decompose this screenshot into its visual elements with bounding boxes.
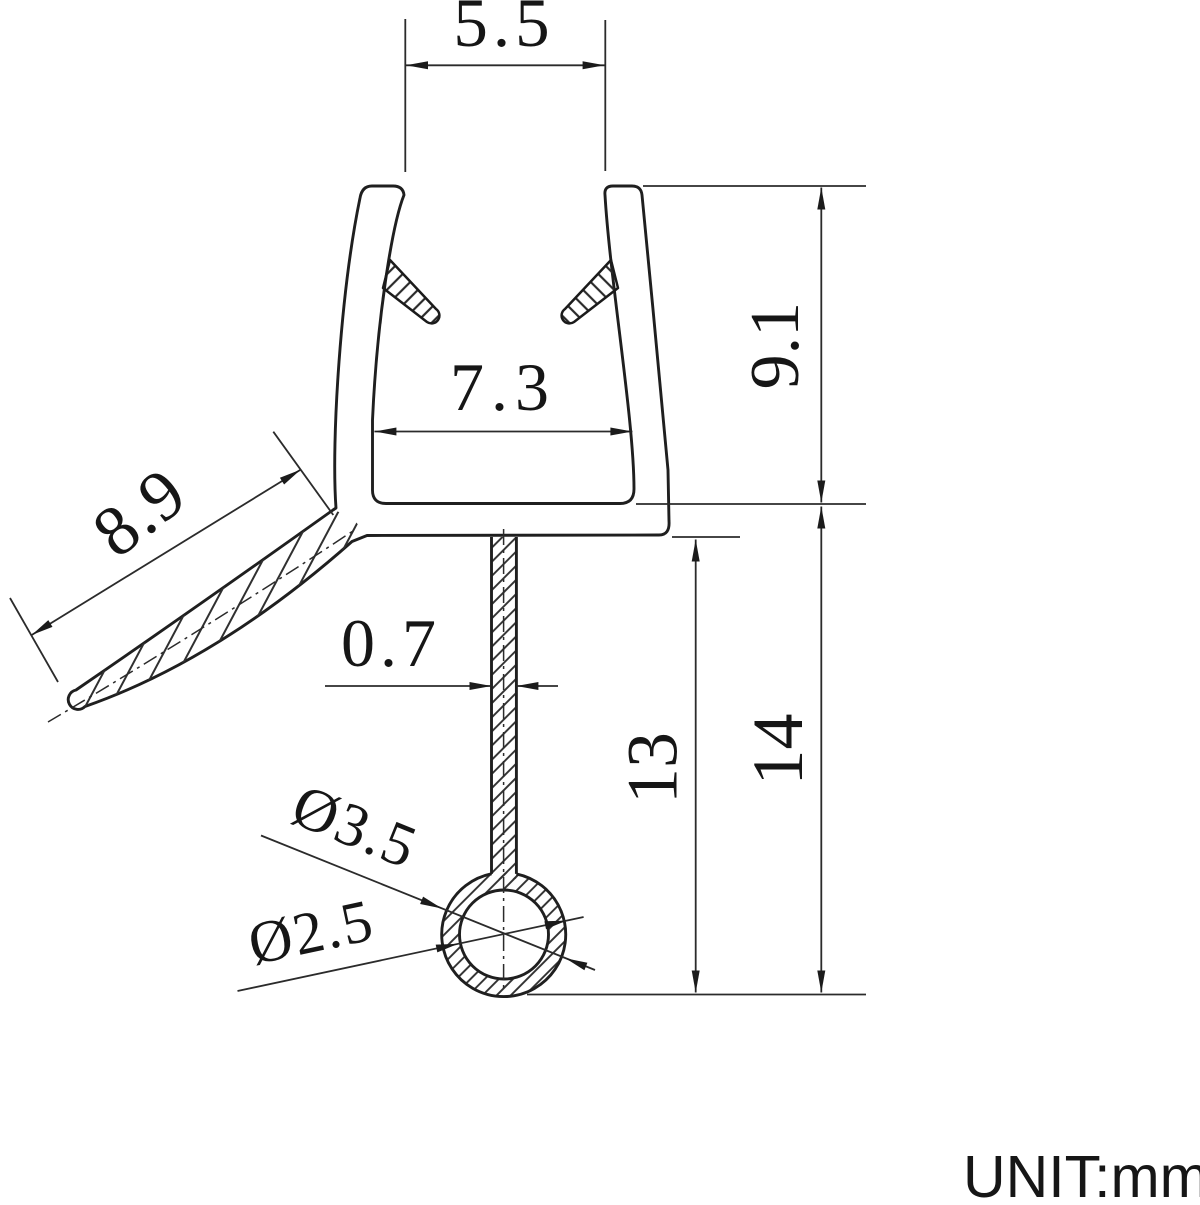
svg-text:Ø3.5: Ø3.5 xyxy=(283,772,427,882)
svg-text:7.3: 7.3 xyxy=(450,349,556,425)
svg-text:Ø2.5: Ø2.5 xyxy=(243,887,380,978)
svg-text:14: 14 xyxy=(738,714,818,786)
svg-text:8.9: 8.9 xyxy=(79,453,202,573)
svg-text:13: 13 xyxy=(613,732,693,804)
svg-text:9.1: 9.1 xyxy=(737,302,814,390)
svg-text:0.7: 0.7 xyxy=(341,605,441,681)
svg-text:5.5: 5.5 xyxy=(453,0,554,61)
svg-text:UNIT:mm: UNIT:mm xyxy=(963,1144,1200,1200)
